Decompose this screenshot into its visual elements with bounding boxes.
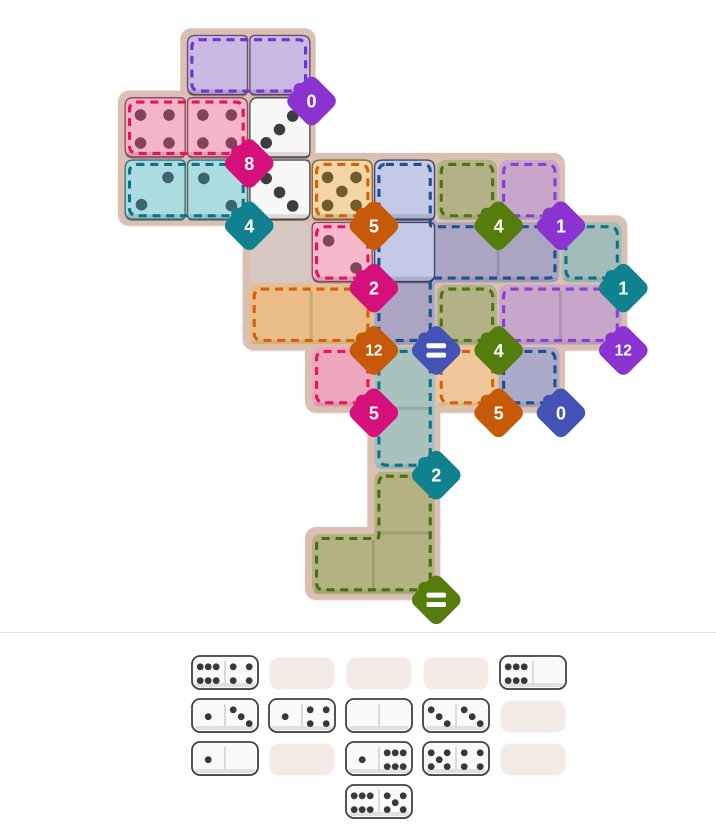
svg-text:5: 5 xyxy=(494,403,504,423)
svg-text:4: 4 xyxy=(494,341,504,361)
svg-text:1: 1 xyxy=(556,216,566,236)
svg-text:12: 12 xyxy=(615,342,632,359)
svg-text:4: 4 xyxy=(244,216,254,236)
svg-text:5: 5 xyxy=(369,216,379,236)
svg-text:1: 1 xyxy=(618,279,628,299)
svg-text:2: 2 xyxy=(369,279,379,299)
svg-text:12: 12 xyxy=(365,342,382,359)
svg-text:5: 5 xyxy=(369,403,379,423)
svg-text:0: 0 xyxy=(307,92,317,112)
svg-text:8: 8 xyxy=(244,154,254,174)
svg-text:4: 4 xyxy=(494,216,504,236)
svg-text:2: 2 xyxy=(431,466,441,486)
svg-text:0: 0 xyxy=(556,403,566,423)
